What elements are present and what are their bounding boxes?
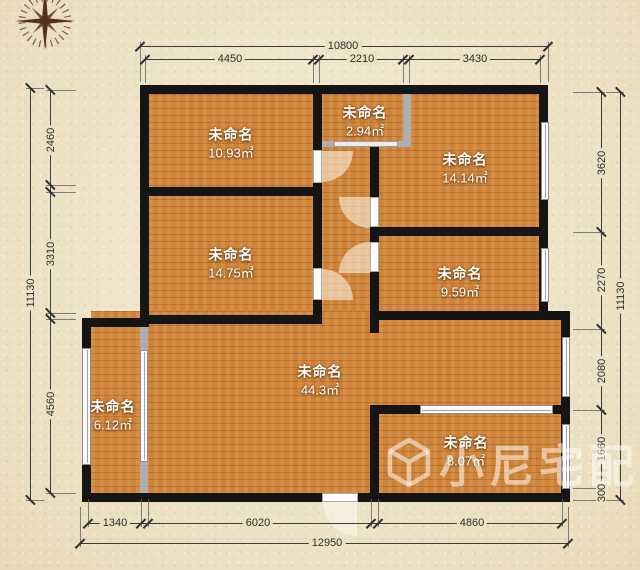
wall xyxy=(370,147,379,197)
room-name: 未命名 xyxy=(208,244,254,264)
room-name: 未命名 xyxy=(438,263,483,283)
wall xyxy=(82,318,149,327)
dimension-label: 3310 xyxy=(45,239,57,269)
wall xyxy=(553,405,561,414)
dimension-label: 10800 xyxy=(325,40,362,52)
door-leaf xyxy=(370,242,379,272)
dimension-label: 2460 xyxy=(45,125,57,155)
dimension-label: 11130 xyxy=(25,276,37,311)
dimension-extension-line xyxy=(26,88,44,89)
dimension-label: 300 xyxy=(596,481,608,505)
window xyxy=(140,350,148,462)
wall xyxy=(370,405,379,502)
room-name: 未命名 xyxy=(208,124,254,144)
door-leaf xyxy=(370,197,379,227)
room-area: 2.94㎡ xyxy=(343,123,388,142)
wall xyxy=(140,315,322,324)
room-label[interactable]: 未命名8.07㎡ xyxy=(444,432,489,471)
sliding-panel xyxy=(334,141,398,147)
dimension-label: 2080 xyxy=(596,356,608,386)
window xyxy=(541,248,549,302)
room-name: 未命名 xyxy=(442,149,488,169)
wall xyxy=(313,94,322,150)
floor-plan-canvas: 未命名10.93㎡未命名2.94㎡未命名14.14㎡未命名14.75㎡未命名9.… xyxy=(0,0,640,570)
room-name: 未命名 xyxy=(343,102,388,122)
wall xyxy=(140,85,149,324)
room-label[interactable]: 未命名6.12㎡ xyxy=(91,396,136,435)
room-label[interactable]: 未命名2.94㎡ xyxy=(343,102,388,141)
wall xyxy=(140,187,322,196)
room-label[interactable]: 未命名14.75㎡ xyxy=(208,244,254,283)
room-label[interactable]: 未命名44.3㎡ xyxy=(298,361,343,400)
room-name: 未命名 xyxy=(298,361,343,381)
dimension-label: 3620 xyxy=(596,148,608,178)
room-label[interactable]: 未命名9.59㎡ xyxy=(438,263,483,302)
door-leaf xyxy=(313,268,322,300)
partition-wall xyxy=(403,94,411,144)
door-swing-arc xyxy=(323,502,357,536)
window xyxy=(562,424,570,489)
room-name: 未命名 xyxy=(444,432,489,452)
room-area: 10.93㎡ xyxy=(208,145,254,164)
dimension-label: 2210 xyxy=(347,53,377,65)
dimension-label: 3430 xyxy=(460,53,490,65)
dimension-label: 4860 xyxy=(457,517,487,529)
dimension-label: 2270 xyxy=(596,265,608,295)
wall xyxy=(370,227,548,236)
door-leaf xyxy=(313,150,322,183)
window xyxy=(562,337,570,397)
partition-wall xyxy=(140,460,148,493)
dimension-extension-line xyxy=(548,42,549,82)
compass-rose-icon xyxy=(6,0,82,58)
wall xyxy=(313,183,322,270)
wall xyxy=(370,272,379,333)
dimension-line xyxy=(88,523,562,524)
door-leaf xyxy=(322,493,358,502)
dimension-label: 12950 xyxy=(309,537,346,549)
room-area: 14.14㎡ xyxy=(442,170,488,189)
dimension-label: 6020 xyxy=(243,517,273,529)
room-label[interactable]: 未命名10.93㎡ xyxy=(208,124,254,163)
room-area: 14.75㎡ xyxy=(208,265,254,284)
window xyxy=(541,122,549,200)
window xyxy=(420,405,553,414)
dimension-extension-line xyxy=(26,500,44,501)
wall xyxy=(370,311,570,320)
wall xyxy=(140,85,548,94)
room-area: 6.12㎡ xyxy=(91,417,136,436)
dimension-label: 1660 xyxy=(596,434,608,464)
dimension-label: 1340 xyxy=(100,517,130,529)
room-label[interactable]: 未命名14.14㎡ xyxy=(442,149,488,188)
dimension-label: 4450 xyxy=(215,53,245,65)
wall xyxy=(82,493,322,502)
room-area: 8.07㎡ xyxy=(444,453,489,472)
room-area: 9.59㎡ xyxy=(438,284,483,303)
plan-drawing: 未命名10.93㎡未命名2.94㎡未命名14.14㎡未命名14.75㎡未命名9.… xyxy=(0,0,640,570)
partition-wall xyxy=(140,324,148,352)
room-area: 44.3㎡ xyxy=(298,382,343,401)
dimension-label: 4560 xyxy=(45,389,57,419)
floor-area xyxy=(91,311,561,493)
room-name: 未命名 xyxy=(91,396,136,416)
dimension-label: 11130 xyxy=(615,279,627,314)
wall xyxy=(370,405,420,414)
wall xyxy=(358,493,570,502)
